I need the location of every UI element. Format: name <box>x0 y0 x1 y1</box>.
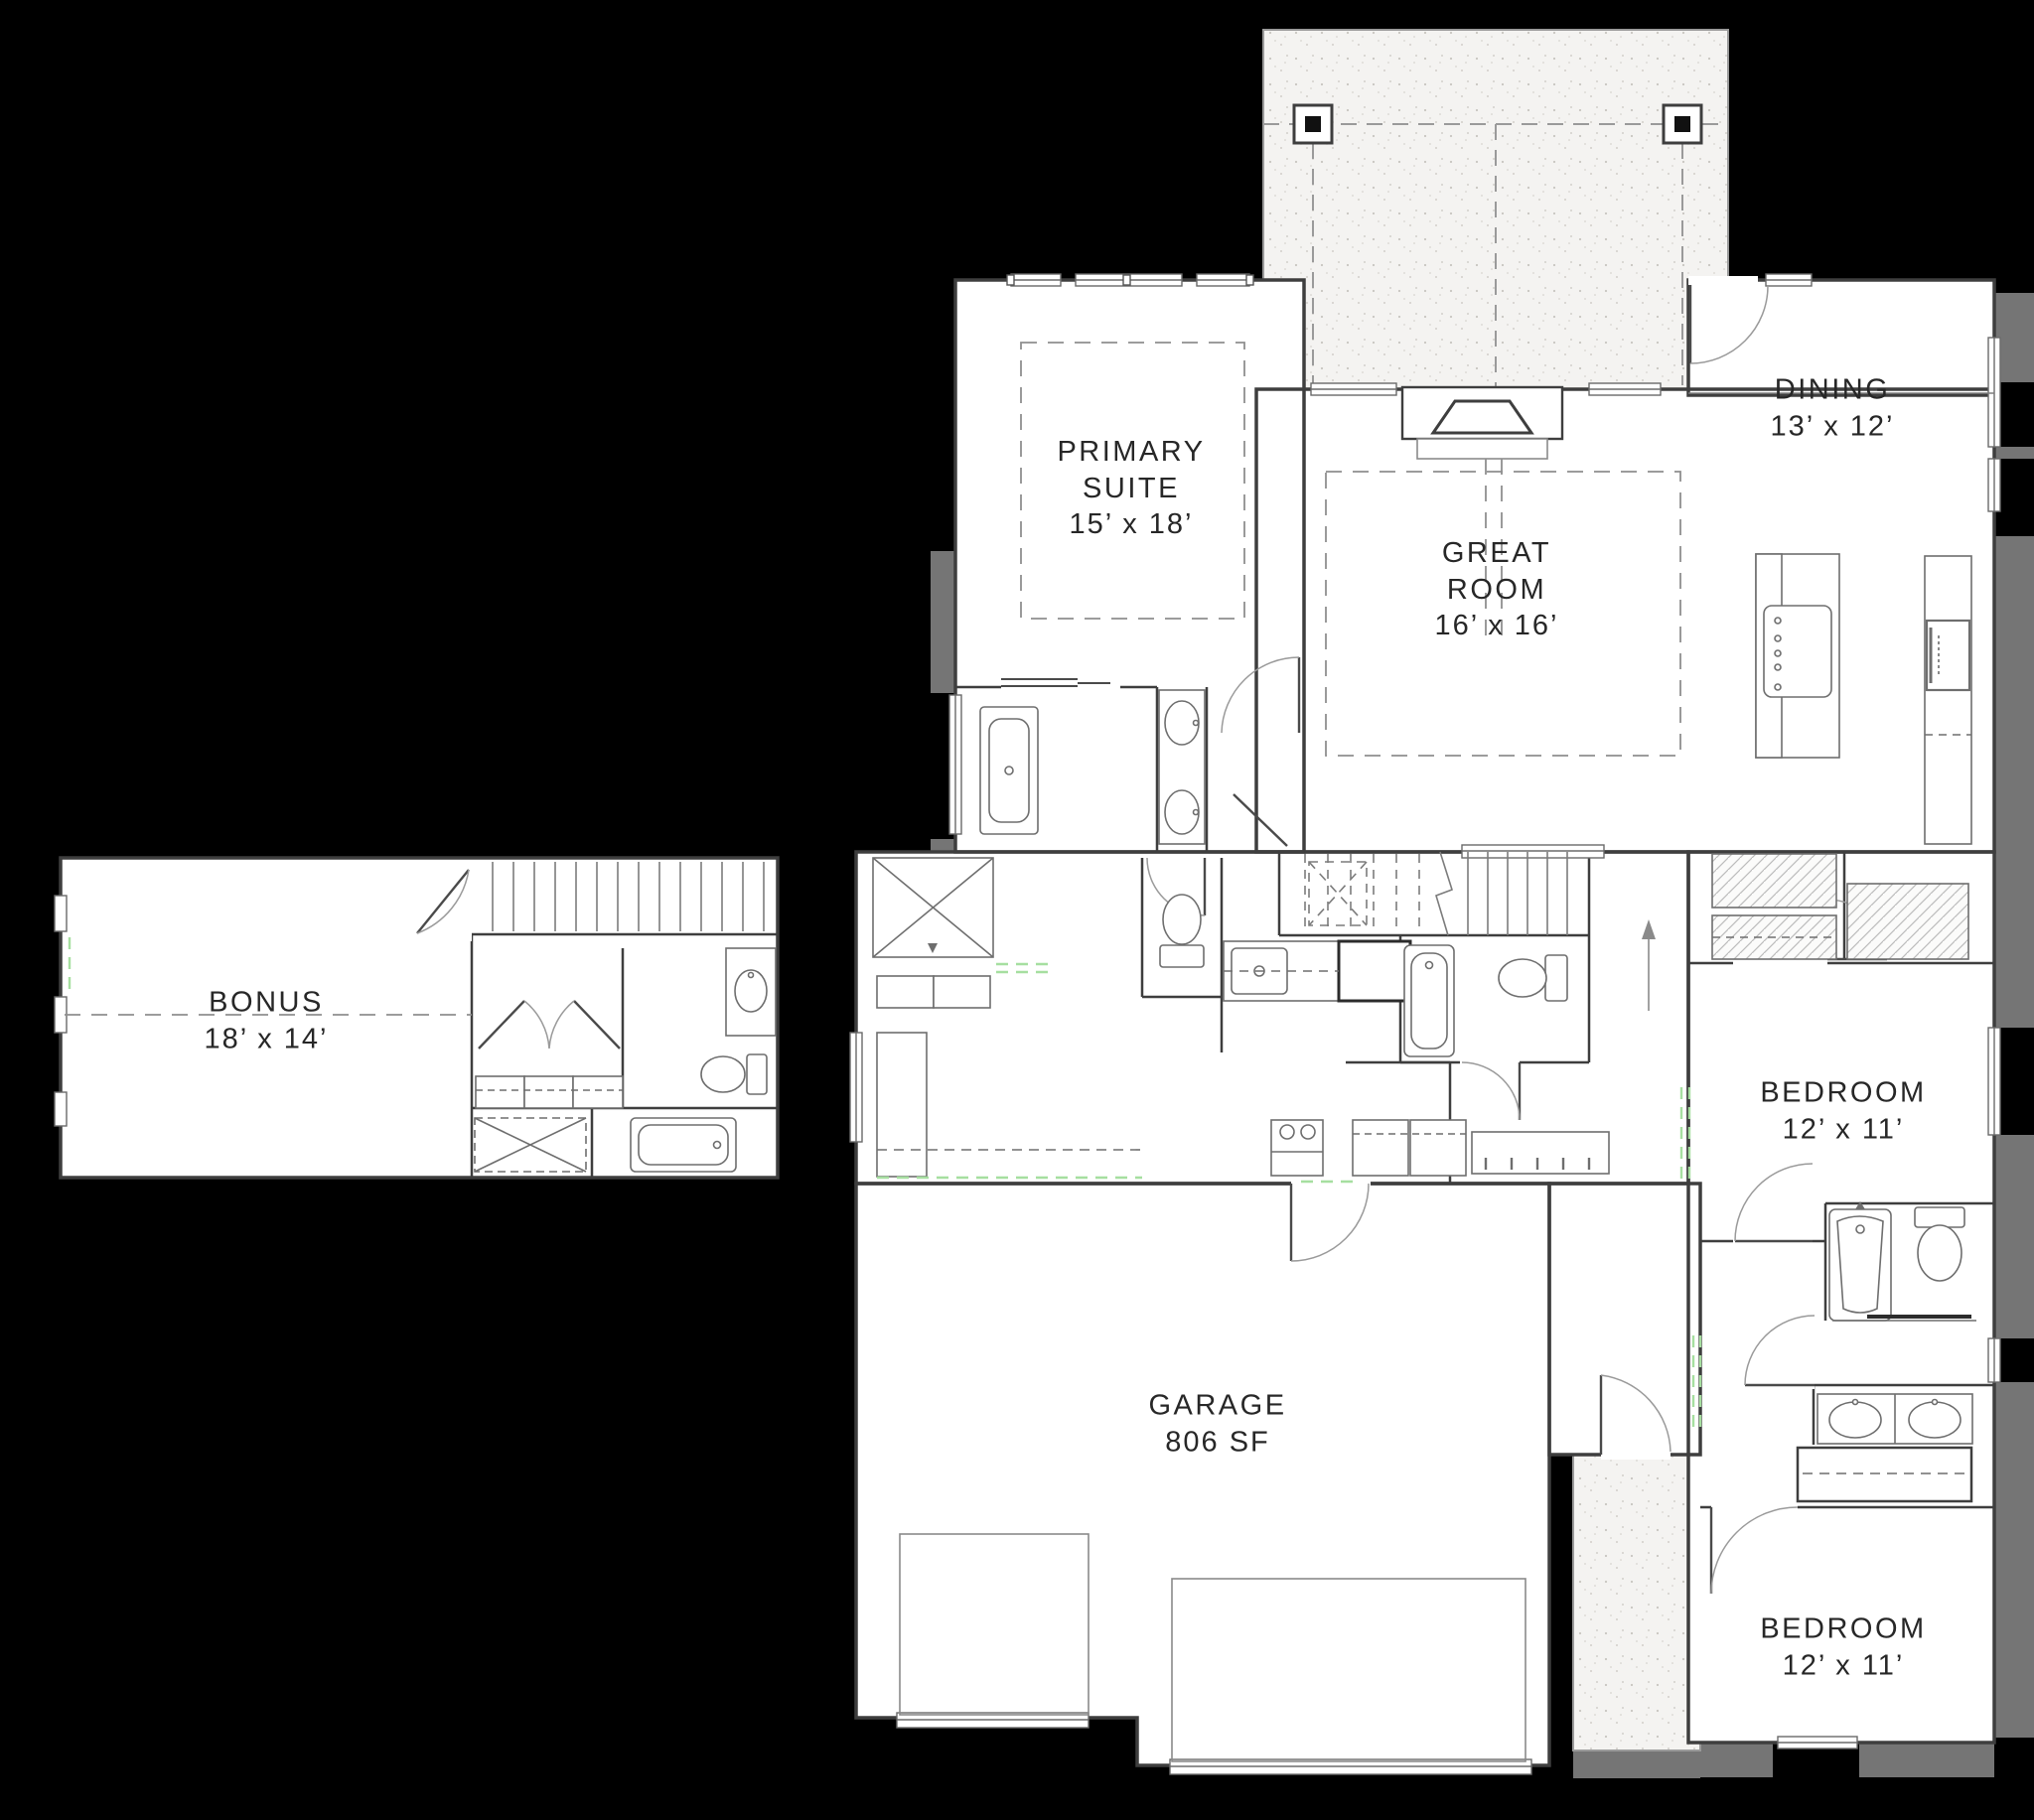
window-bath2-right <box>1988 1338 2000 1382</box>
window-row-primary-top <box>1007 274 1253 286</box>
bonus-tub <box>631 1118 736 1172</box>
label-dining: DINING 13’ x 12’ <box>1693 371 1971 444</box>
label-primary-suite: PRIMARY SUITE 15’ x 18’ <box>1025 434 1238 543</box>
room-name: BEDROOM <box>1674 1610 2012 1647</box>
primary-shower <box>873 858 993 957</box>
bath2-tub <box>1829 1201 1891 1321</box>
room-dims: 13’ x 12’ <box>1693 408 1971 445</box>
primary-toilet <box>1160 895 1204 967</box>
label-bonus: BONUS 18’ x 14’ <box>107 984 425 1056</box>
laundry-sink-box <box>1271 1120 1323 1176</box>
room-name: GARAGE <box>1059 1387 1377 1424</box>
bath2-vanity <box>1817 1394 1972 1444</box>
bonus-vanity <box>726 948 776 1036</box>
kitchen-island <box>1756 554 1839 758</box>
room-dims: 12’ x 11’ <box>1674 1647 2012 1684</box>
primary-tub <box>980 707 1038 834</box>
window-wic-left <box>850 1033 862 1142</box>
room-dims: 18’ x 14’ <box>107 1021 425 1057</box>
room-name: BONUS <box>107 984 425 1021</box>
room-name: GREAT ROOM <box>1397 535 1596 608</box>
window-bedroom2-bottom <box>1778 1737 1857 1749</box>
room-name: PRIMARY SUITE <box>1025 434 1238 506</box>
window-dining-top <box>1766 274 1812 286</box>
bath2-toilet <box>1915 1207 1964 1281</box>
label-bedroom-lower: BEDROOM 12’ x 11’ <box>1674 1610 2012 1683</box>
fireplace <box>1402 387 1562 459</box>
hall-bath-tub <box>1404 945 1454 1056</box>
room-dims: 16’ x 16’ <box>1397 608 1596 644</box>
label-great-room: GREAT ROOM 16’ x 16’ <box>1397 535 1596 644</box>
hall-bath-toilet <box>1499 955 1567 1001</box>
floor-plan-svg <box>0 0 2034 1820</box>
bonus-shower <box>475 1118 586 1172</box>
kitchen-sink-counter <box>1224 941 1410 1001</box>
room-dims: 12’ x 11’ <box>1674 1111 2012 1148</box>
bonus-toilet <box>701 1054 767 1094</box>
room-name: DINING <box>1693 371 1971 408</box>
mud-bench <box>1472 1132 1609 1174</box>
window-primary-left <box>949 695 961 834</box>
label-garage: GARAGE 806 SF <box>1059 1387 1377 1460</box>
room-dims: 15’ x 18’ <box>1025 506 1238 543</box>
room-name: BEDROOM <box>1674 1074 2012 1111</box>
primary-vanity <box>1159 690 1205 844</box>
kitchen-wall-counter <box>1925 556 1971 844</box>
room-dims: 806 SF <box>1059 1424 1377 1461</box>
bonus-closet-builtins <box>476 1076 623 1108</box>
floor-plan-page: PRIMARY SUITE 15’ x 18’ GREAT ROOM 16’ x… <box>0 0 2034 1820</box>
label-bedroom-upper: BEDROOM 12’ x 11’ <box>1674 1074 2012 1147</box>
windows-dining-right <box>1988 338 2000 511</box>
cased-opening-greatroom-south <box>1462 845 1604 858</box>
